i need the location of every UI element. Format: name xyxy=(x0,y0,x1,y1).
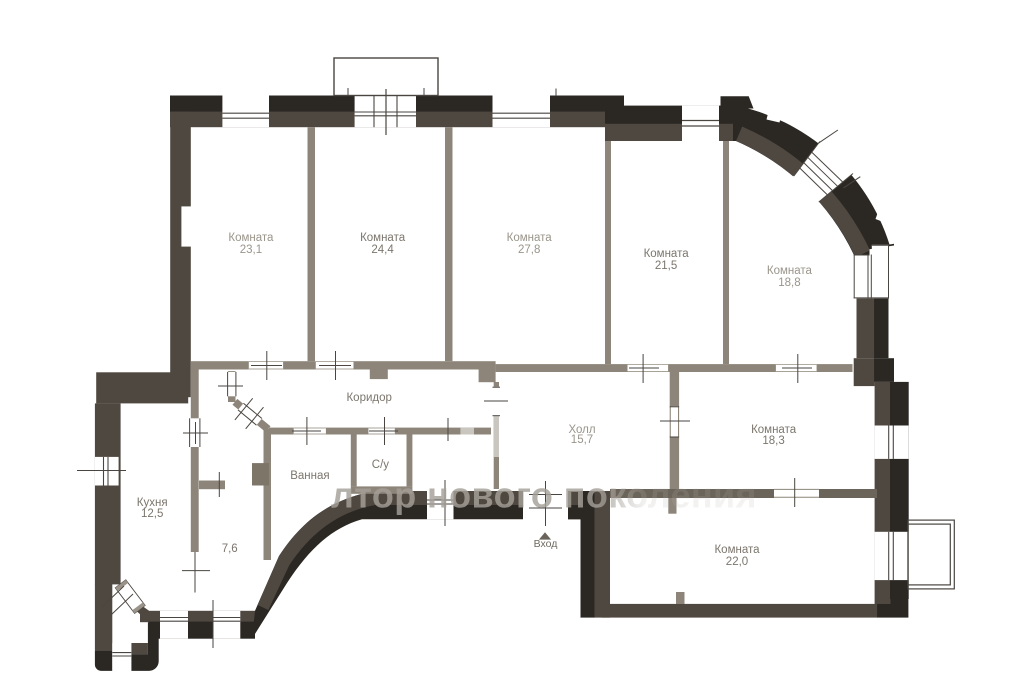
svg-text:Ванная: Ванная xyxy=(290,470,329,482)
svg-text:23,1: 23,1 xyxy=(240,244,262,256)
svg-text:Комната: Комната xyxy=(507,232,553,244)
svg-text:24,4: 24,4 xyxy=(371,244,394,256)
svg-text:22,0: 22,0 xyxy=(726,556,748,568)
svg-text:Комната: Комната xyxy=(644,248,690,260)
svg-text:С/у: С/у xyxy=(372,459,390,471)
svg-text:Комната: Комната xyxy=(767,265,813,277)
svg-text:Комната: Комната xyxy=(714,544,760,556)
svg-text:7,6: 7,6 xyxy=(222,543,238,555)
svg-text:18,8: 18,8 xyxy=(778,277,800,289)
svg-text:Комната: Комната xyxy=(228,232,274,244)
svg-text:Комната: Комната xyxy=(360,232,406,244)
svg-text:Коридор: Коридор xyxy=(346,392,391,404)
svg-text:21,5: 21,5 xyxy=(655,260,677,272)
svg-text:12,5: 12,5 xyxy=(141,508,163,520)
svg-text:Вход: Вход xyxy=(534,538,558,550)
svg-text:18,3: 18,3 xyxy=(762,435,784,447)
svg-text:15,7: 15,7 xyxy=(571,434,593,446)
svg-text:27,8: 27,8 xyxy=(518,244,540,256)
svg-text:лтор нового поколения: лтор нового поколения xyxy=(331,475,757,516)
